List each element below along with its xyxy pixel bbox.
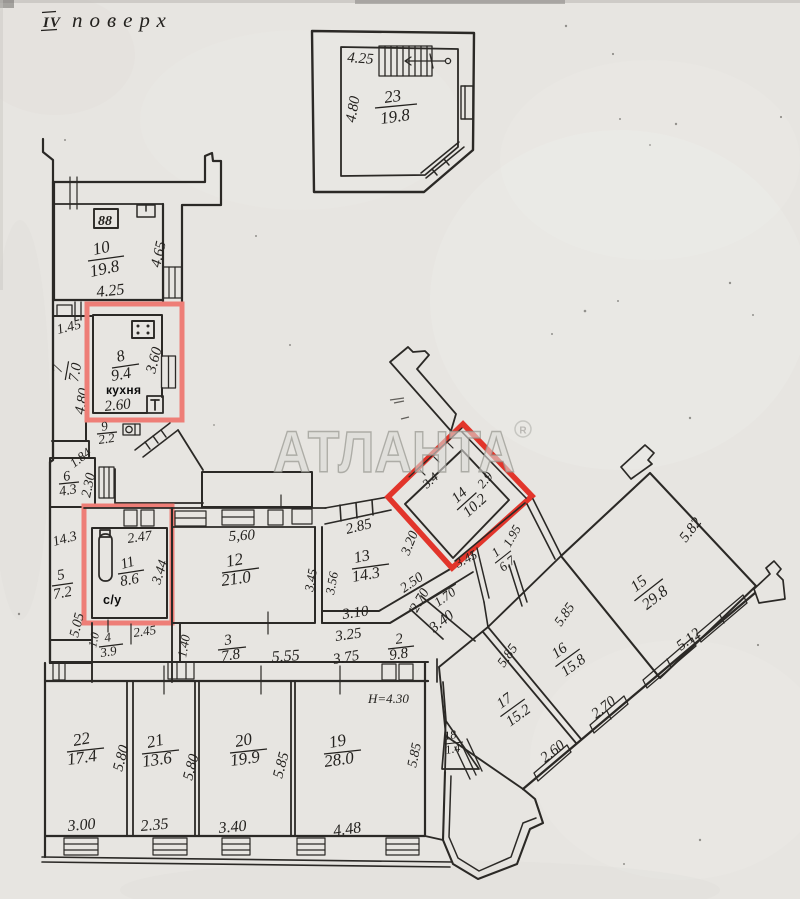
svg-text:4.3: 4.3	[58, 482, 78, 500]
svg-text:7.2: 7.2	[52, 584, 74, 603]
svg-text:5,60: 5,60	[228, 527, 256, 545]
svg-text:4.25: 4.25	[96, 281, 126, 301]
svg-text:7.8: 7.8	[220, 646, 241, 665]
svg-text:IV: IV	[42, 15, 62, 31]
svg-text:с/у: с/у	[103, 593, 122, 607]
svg-text:5.55: 5.55	[271, 647, 300, 666]
svg-text:1.4: 1.4	[444, 741, 461, 757]
svg-text:поверх: поверх	[72, 8, 173, 32]
svg-text:2.60: 2.60	[104, 396, 132, 415]
svg-text:7.0: 7.0	[66, 361, 85, 383]
svg-text:2.45: 2.45	[132, 622, 157, 640]
svg-text:кухня: кухня	[106, 383, 141, 397]
svg-text:2.35: 2.35	[140, 816, 169, 835]
svg-text:R: R	[519, 426, 527, 437]
svg-text:3.00: 3.00	[66, 816, 96, 835]
svg-text:АТЛАНТА: АТЛАНТА	[273, 420, 515, 485]
svg-text:4.25: 4.25	[347, 50, 375, 68]
svg-text:23: 23	[383, 86, 402, 107]
svg-text:88: 88	[98, 214, 112, 229]
svg-text:H=4.30: H=4.30	[367, 691, 409, 706]
svg-text:3.9: 3.9	[98, 643, 118, 660]
svg-text:3.40: 3.40	[217, 818, 247, 837]
svg-text:8.6: 8.6	[119, 571, 141, 590]
svg-text:2.2: 2.2	[97, 430, 116, 447]
svg-text:9.8: 9.8	[388, 645, 409, 664]
svg-text:9.4: 9.4	[110, 365, 133, 385]
